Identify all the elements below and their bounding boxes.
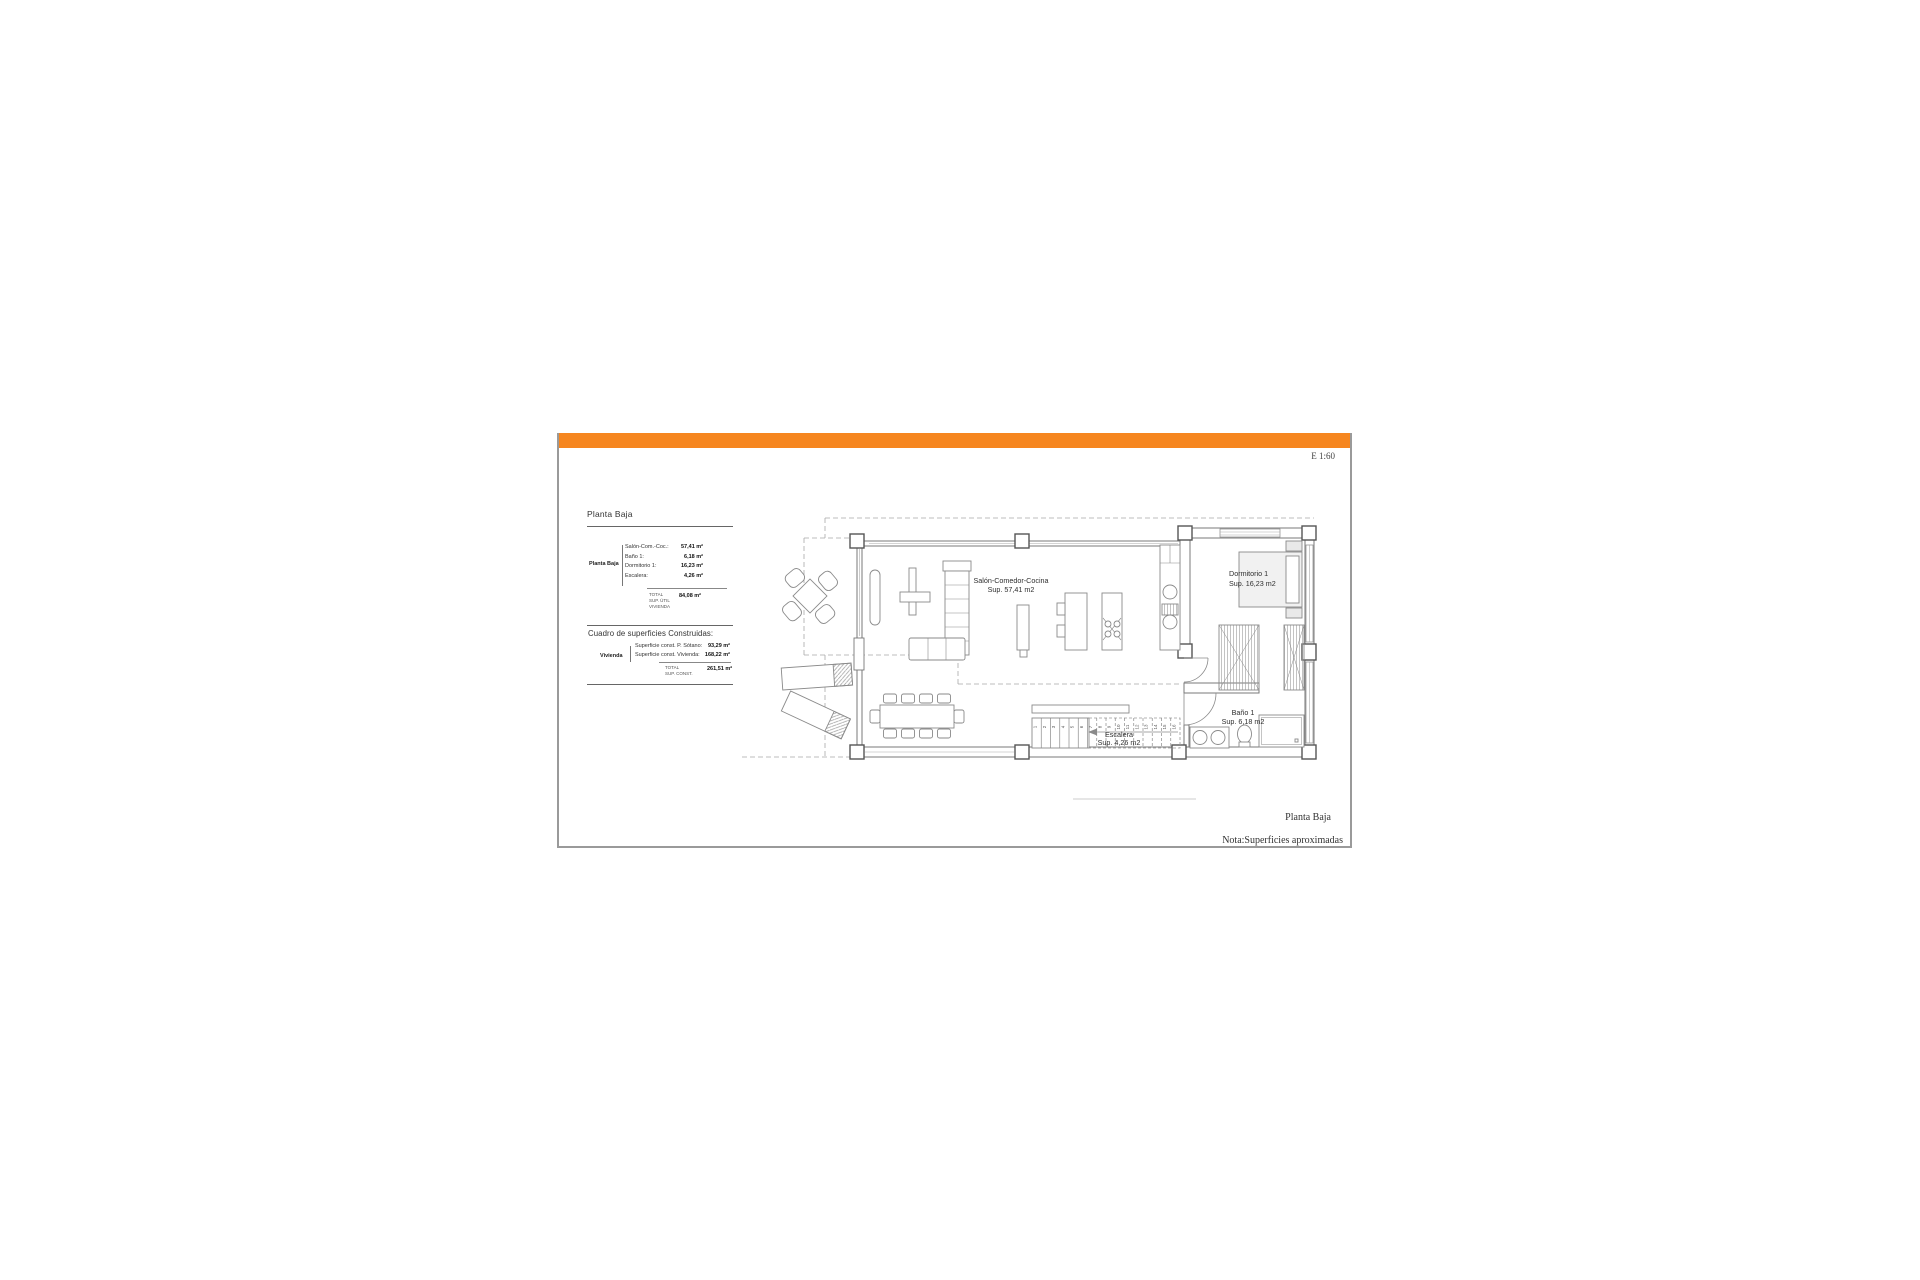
tall-cabinet	[1017, 605, 1029, 657]
room-label-bano: Baño 1	[1232, 708, 1255, 717]
stair-handrail	[1032, 705, 1129, 713]
wardrobe	[1219, 625, 1259, 690]
sideboard	[870, 570, 880, 625]
wardrobe	[1284, 625, 1304, 690]
svg-text:11: 11	[1125, 724, 1130, 729]
vanity-double-sink	[1190, 727, 1229, 748]
bedroom-furniture	[1219, 541, 1304, 690]
room-label-dormitorio: Dormitorio 1	[1229, 569, 1268, 578]
section1-group-label: Planta Baja	[589, 561, 619, 567]
kitchen-island-bar	[1057, 593, 1087, 650]
rule	[587, 625, 733, 626]
section1-rows: Salón-Com.-Coc.:57,41 m² Baño 1:6,18 m² …	[625, 544, 703, 582]
rule	[647, 588, 727, 589]
coffee-table	[900, 592, 930, 602]
kitchen	[1057, 545, 1180, 650]
dining-set	[870, 694, 964, 738]
rule	[587, 526, 733, 527]
divider	[630, 646, 631, 662]
section1-total-label: TOTAL SUP. ÚTIL VIVIENDA	[649, 592, 670, 609]
table-row: Escalera:4,26 m²	[625, 573, 703, 583]
shower	[1259, 715, 1304, 747]
svg-text:12: 12	[1134, 724, 1139, 730]
nightstand	[1286, 608, 1302, 618]
section2-group-label: Vivienda	[600, 653, 623, 659]
dining-table	[880, 705, 954, 728]
table-row: Baño 1:6,18 m²	[625, 554, 703, 564]
svg-text:9: 9	[1107, 725, 1112, 728]
divider	[622, 545, 623, 586]
room-area-escalera: Sup. 4,26 m2	[1098, 738, 1141, 747]
kitchen-counter	[1160, 545, 1180, 650]
section2-total-label: TOTAL SUP. CONST.	[665, 665, 693, 677]
drawing-sheet: E 1:60 Planta Baja Planta Baja Salón-Com…	[557, 433, 1352, 848]
section1-total-value: 84,08 m²	[679, 593, 701, 599]
svg-text:15: 15	[1162, 724, 1167, 730]
toilet	[1238, 725, 1252, 747]
table-row: Superficie const. P. Sótano:93,29 m²	[635, 643, 730, 652]
svg-text:10: 10	[1116, 724, 1121, 730]
kitchen-island-cooktop	[1102, 593, 1122, 650]
section2-total-value: 261,51 m²	[707, 666, 732, 672]
svg-text:8: 8	[1097, 725, 1102, 728]
sofa	[909, 638, 965, 660]
room-label-salon: Salón-Comedor-Cocina	[973, 576, 1048, 585]
floor-plan: 12345678910111213141516 Salón-Comedor-Co…	[737, 505, 1357, 810]
room-area-dormitorio: Sup. 16,23 m2	[1229, 579, 1276, 588]
section1-title: Planta Baja	[587, 509, 633, 519]
entrance-door	[854, 638, 864, 670]
rule	[659, 662, 731, 663]
room-area-bano: Sup. 6,18 m2	[1222, 717, 1265, 726]
pillow	[1286, 556, 1299, 603]
table-row: Superficie const. Vivienda:168,22 m²	[635, 652, 730, 661]
svg-text:14: 14	[1153, 724, 1158, 730]
nightstand	[1286, 541, 1302, 551]
table-row: Dormitorio 1:16,23 m²	[625, 563, 703, 573]
drawing-note: Nota:Superficies aproximadas	[1222, 835, 1343, 846]
section2-rows: Superficie const. P. Sótano:93,29 m² Sup…	[635, 643, 730, 660]
sun-loungers	[781, 663, 852, 739]
scale-label: E 1:60	[1311, 451, 1335, 461]
drawing-title: Planta Baja	[1285, 812, 1331, 823]
title-bar	[559, 433, 1350, 448]
table-row: Salón-Com.-Coc.:57,41 m²	[625, 544, 703, 554]
tv-bench	[909, 568, 916, 615]
rule	[587, 684, 733, 685]
room-area-salon: Sup. 57,41 m2	[988, 585, 1035, 594]
section2-title: Cuadro de superficies Construidas:	[588, 629, 713, 638]
terrace-table-set	[780, 566, 839, 625]
svg-text:13: 13	[1144, 724, 1149, 730]
svg-text:16: 16	[1171, 724, 1176, 730]
